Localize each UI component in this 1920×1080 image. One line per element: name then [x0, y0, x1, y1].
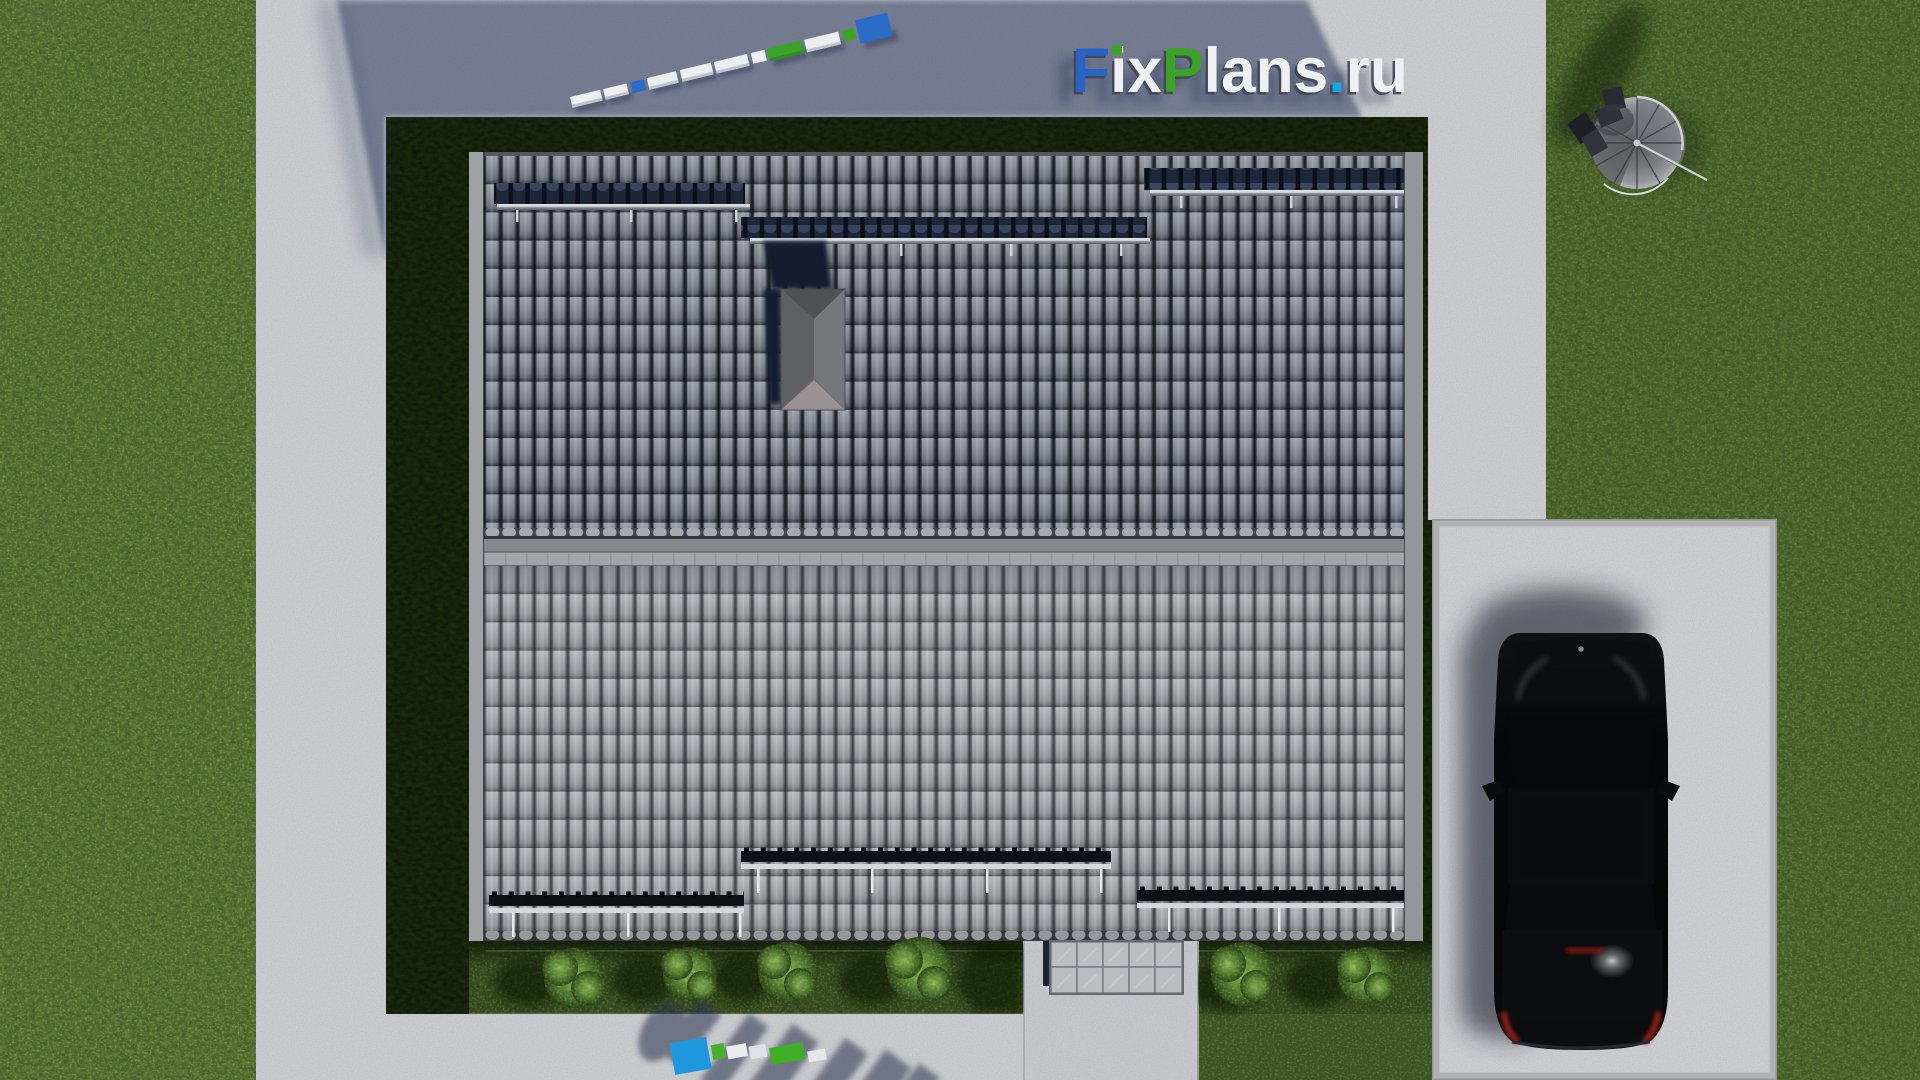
- svg-text:FixPlans.ru: FixPlans.ru: [1072, 36, 1408, 106]
